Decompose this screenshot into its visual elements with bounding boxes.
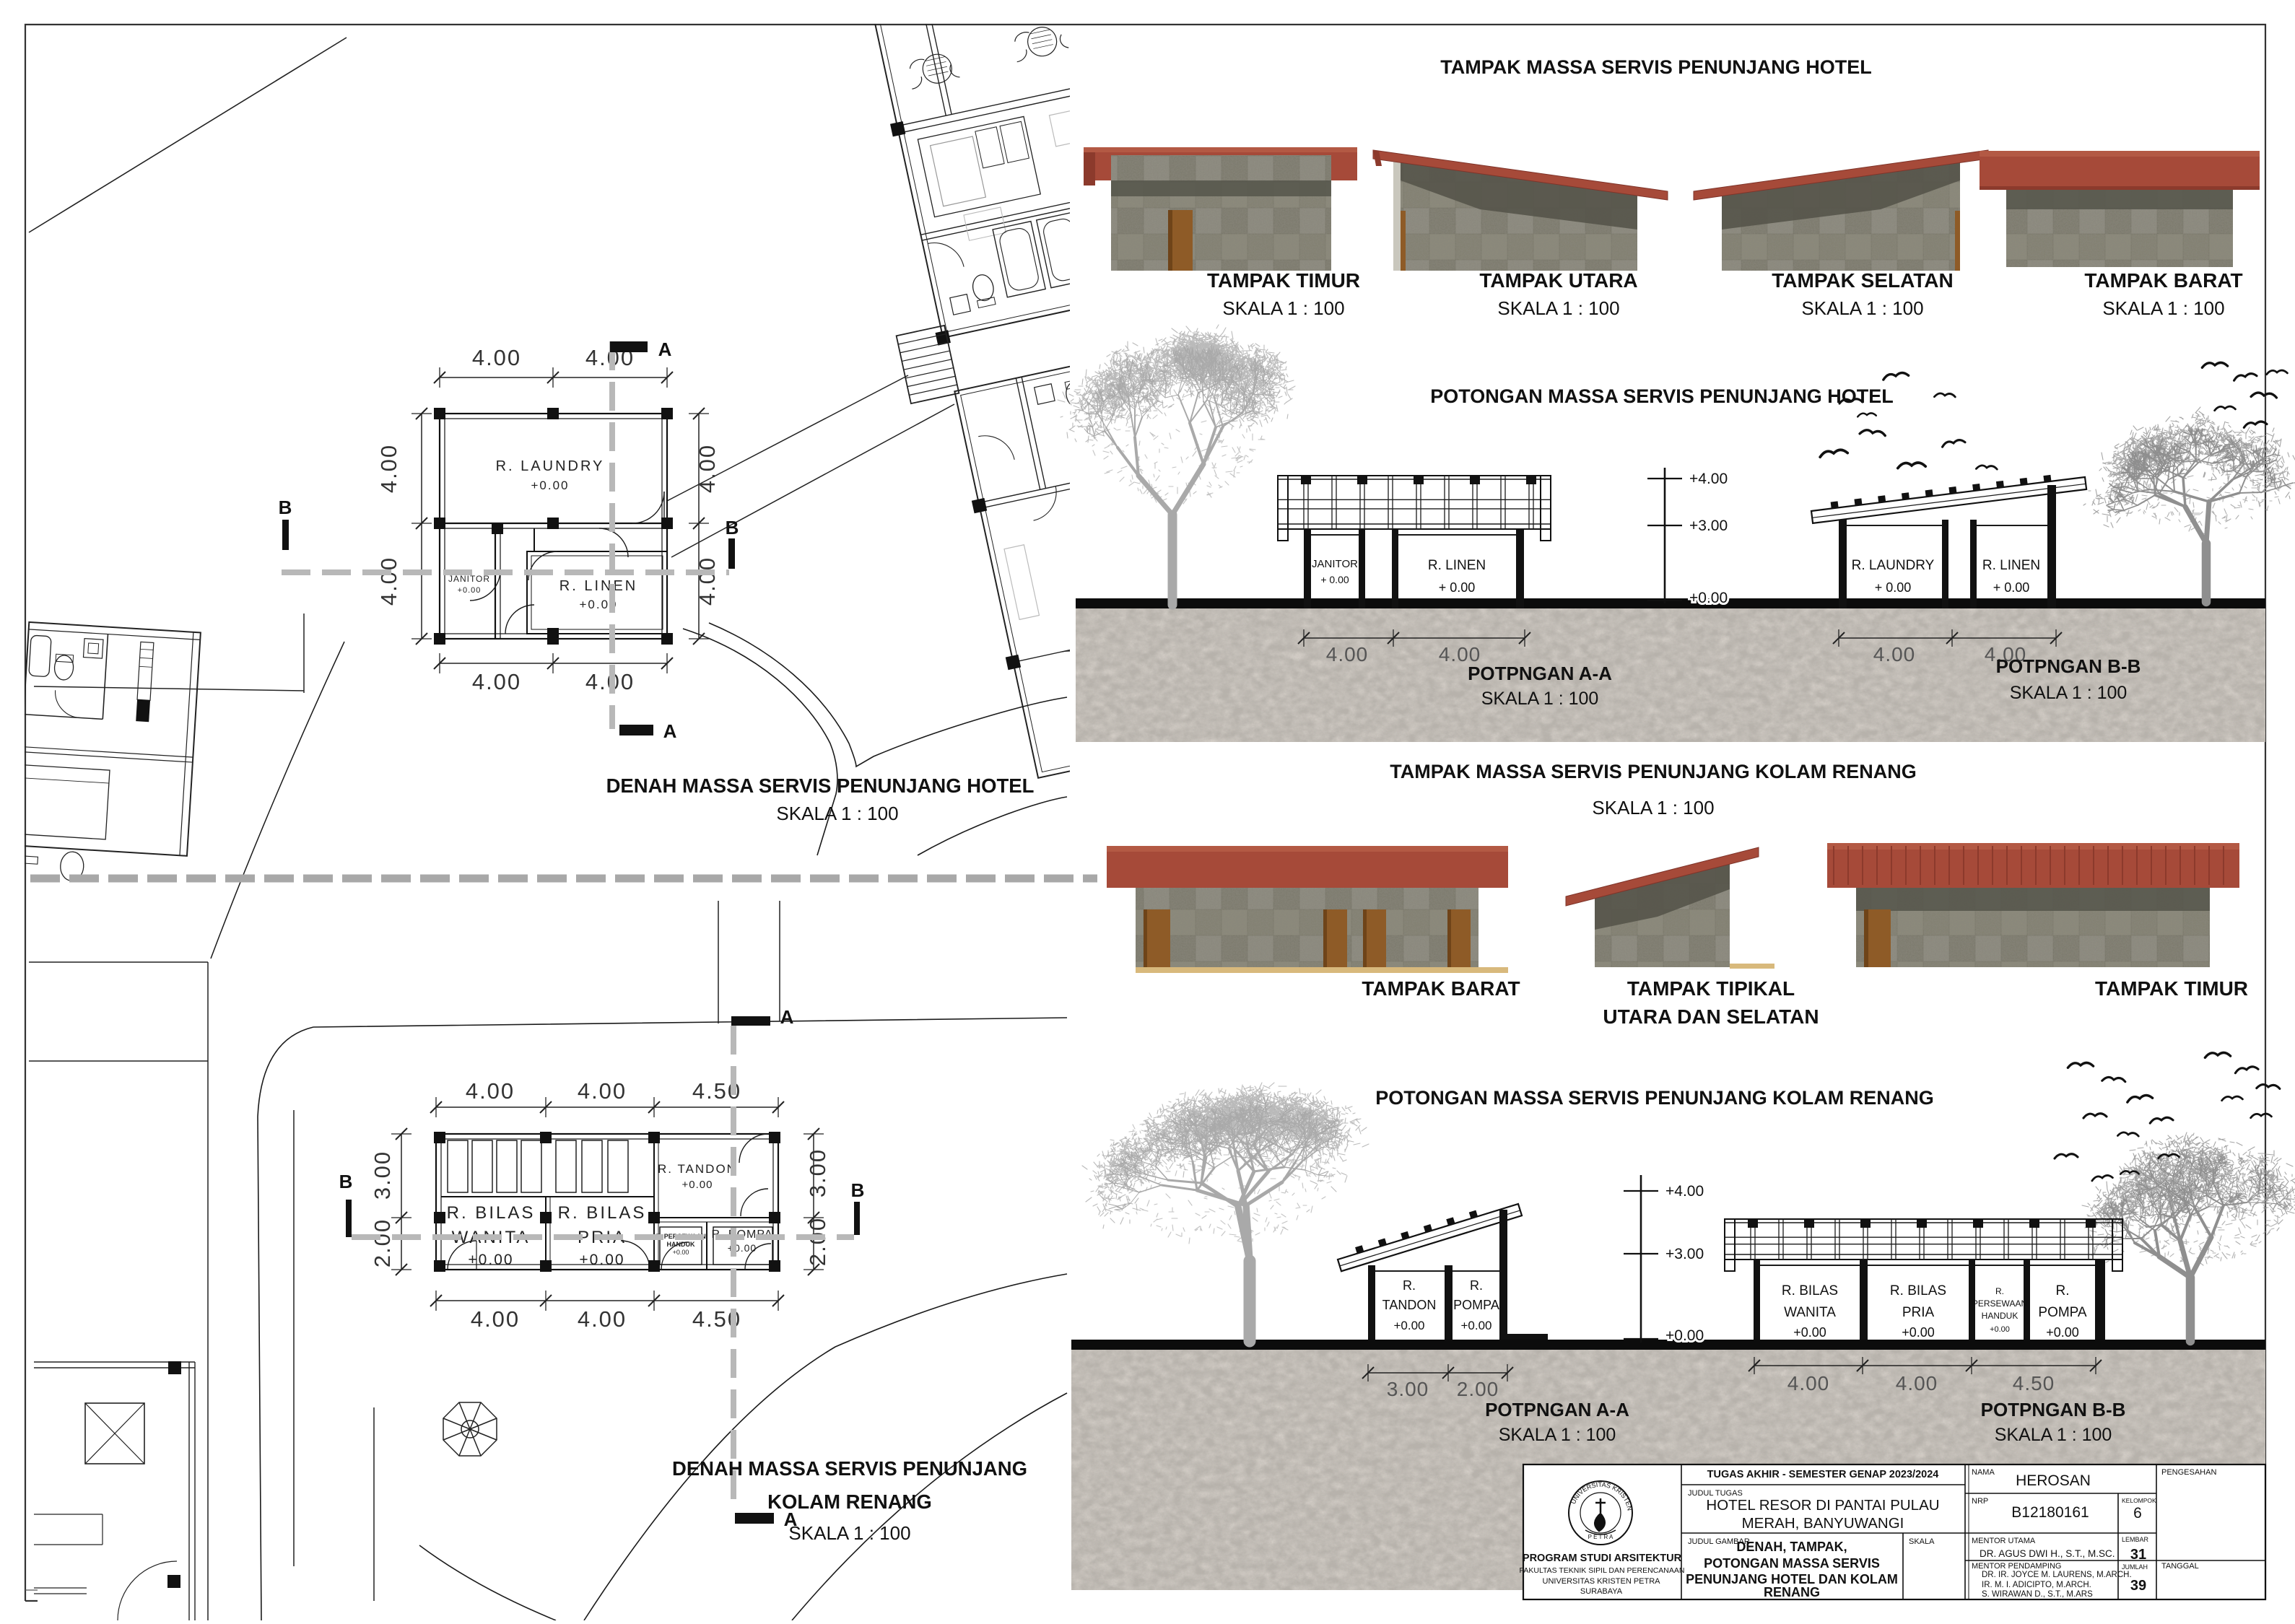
svg-text:R. BILAS: R. BILAS: [1890, 1283, 1946, 1298]
svg-text:DR. AGUS DWI H., S.T., M.SC.: DR. AGUS DWI H., S.T., M.SC.: [1980, 1548, 2115, 1559]
svg-text:DENAH MASSA SERVIS PENUNJANG: DENAH MASSA SERVIS PENUNJANG: [672, 1457, 1027, 1480]
svg-text:POTONGAN MASSA SERVIS PENUNJAN: POTONGAN MASSA SERVIS PENUNJANG KOLAM RE…: [1375, 1087, 1934, 1109]
svg-text:TAMPAK MASSA SERVIS PENUNJANG: TAMPAK MASSA SERVIS PENUNJANG HOTEL: [1440, 56, 1872, 78]
svg-text:+0.00: +0.00: [468, 1252, 513, 1268]
svg-text:4.00: 4.00: [376, 444, 401, 493]
svg-text:TAMPAK UTARA: TAMPAK UTARA: [1479, 269, 1637, 292]
svg-text:B: B: [279, 497, 292, 518]
svg-text:B: B: [726, 517, 739, 538]
svg-text:4.00: 4.00: [472, 669, 521, 694]
svg-text:JANITOR: JANITOR: [1312, 558, 1358, 570]
svg-text:HOTEL RESOR DI PANTAI PULAU: HOTEL RESOR DI PANTAI PULAU: [1706, 1497, 1939, 1514]
svg-text:4.00: 4.00: [466, 1078, 515, 1104]
svg-text:+0.00: +0.00: [1665, 1327, 1704, 1344]
svg-text:SKALA 1 : 100: SKALA 1 : 100: [1497, 297, 1619, 319]
svg-text:SKALA 1 : 100: SKALA 1 : 100: [1499, 1425, 1616, 1445]
svg-text:PENUNJANG HOTEL DAN KOLAM: PENUNJANG HOTEL DAN KOLAM: [1686, 1572, 1898, 1586]
svg-text:TANDON: TANDON: [1382, 1298, 1437, 1312]
svg-text:A: A: [663, 720, 677, 742]
svg-text:JUMLAH: JUMLAH: [2122, 1563, 2148, 1571]
svg-text:R. LAUNDRY: R. LAUNDRY: [1852, 558, 1935, 573]
svg-text:TAMPAK BARAT: TAMPAK BARAT: [1362, 977, 1520, 1000]
svg-text:4.00: 4.00: [376, 556, 401, 606]
svg-text:PRIA: PRIA: [1902, 1305, 1935, 1320]
svg-text:4.00: 4.00: [578, 1078, 627, 1104]
svg-text:POMPA: POMPA: [2038, 1305, 2087, 1320]
svg-text:POMPA: POMPA: [1453, 1298, 1499, 1312]
svg-text:IR. M. I. ADICIPTO, M.ARCH.: IR. M. I. ADICIPTO, M.ARCH.: [1982, 1581, 2091, 1589]
svg-text:R. LAUNDRY: R. LAUNDRY: [496, 458, 605, 474]
svg-text:P E T R A: P E T R A: [1588, 1534, 1614, 1540]
svg-text:PERSEWAAN: PERSEWAAN: [1972, 1298, 2027, 1309]
svg-text:UNIVERSITAS KRISTEN PETRA: UNIVERSITAS KRISTEN PETRA: [1543, 1577, 1661, 1586]
svg-text:3.00: 3.00: [805, 1148, 830, 1197]
svg-text:TANGGAL: TANGGAL: [2161, 1562, 2199, 1571]
svg-text:+3.00: +3.00: [1689, 518, 1728, 534]
svg-text:R. BILAS: R. BILAS: [1782, 1283, 1838, 1298]
svg-text:MERAH, BANYUWANGI: MERAH, BANYUWANGI: [1742, 1515, 1904, 1532]
svg-text:POTONGAN MASSA SERVIS PENUNJAN: POTONGAN MASSA SERVIS PENUNJANG HOTEL: [1430, 385, 1894, 407]
svg-text:+ 0.00: + 0.00: [1993, 580, 2030, 595]
svg-text:NAMA: NAMA: [1972, 1468, 1995, 1477]
svg-text:SKALA 1 : 100: SKALA 1 : 100: [1481, 689, 1599, 709]
svg-text:4.00: 4.00: [1896, 1372, 1938, 1394]
svg-text:SKALA 1 : 100: SKALA 1 : 100: [788, 1522, 910, 1544]
svg-text:SKALA: SKALA: [1909, 1537, 1935, 1546]
svg-text:TAMPAK BARAT: TAMPAK BARAT: [2084, 269, 2242, 292]
svg-text:2.00: 2.00: [370, 1218, 395, 1267]
svg-text:A: A: [658, 339, 672, 360]
svg-text:4.00: 4.00: [1873, 643, 1916, 665]
svg-text:4.00: 4.00: [578, 1306, 627, 1332]
svg-text:S. WIRAWAN D., S.T., M.ARS: S. WIRAWAN D., S.T., M.ARS: [1982, 1590, 2093, 1599]
svg-text:R. BILAS: R. BILAS: [558, 1203, 647, 1223]
svg-text:SKALA 1 : 100: SKALA 1 : 100: [2102, 297, 2224, 319]
svg-text:+0.00: +0.00: [458, 586, 482, 595]
svg-text:+0.00: +0.00: [1990, 1325, 2010, 1334]
svg-text:+3.00: +3.00: [1665, 1246, 1704, 1262]
svg-text:TAMPAK SELATAN: TAMPAK SELATAN: [1772, 269, 1953, 292]
svg-text:+0.00: +0.00: [1689, 590, 1728, 606]
svg-text:+ 0.00: + 0.00: [1875, 580, 1912, 595]
svg-text:+ 0.00: + 0.00: [1320, 574, 1349, 585]
svg-text:+0.00: +0.00: [673, 1249, 689, 1256]
svg-text:2.00: 2.00: [1457, 1378, 1499, 1400]
svg-text:SKALA 1 : 100: SKALA 1 : 100: [776, 803, 898, 824]
svg-text:RENANG: RENANG: [1764, 1585, 1820, 1599]
svg-text:4.00: 4.00: [694, 444, 720, 493]
svg-text:R. LINEN: R. LINEN: [1982, 558, 2040, 573]
svg-text:POTPNGAN A-A: POTPNGAN A-A: [1468, 663, 1612, 684]
svg-text:SURABAYA: SURABAYA: [1580, 1587, 1623, 1596]
svg-text:NRP: NRP: [1972, 1497, 1988, 1506]
svg-text:+0.00: +0.00: [1902, 1325, 1935, 1340]
svg-text:R. LINEN: R. LINEN: [559, 578, 637, 594]
svg-text:3.00: 3.00: [1387, 1378, 1429, 1400]
svg-text:SKALA 1 : 100: SKALA 1 : 100: [2010, 683, 2128, 703]
svg-text:POTONGAN MASSA SERVIS: POTONGAN MASSA SERVIS: [1704, 1556, 1880, 1571]
svg-text:4.00: 4.00: [1787, 1372, 1830, 1394]
svg-text:6: 6: [2133, 1505, 2142, 1522]
svg-text:TAMPAK TIMUR: TAMPAK TIMUR: [2095, 977, 2248, 1000]
svg-text:+4.00: +4.00: [1689, 471, 1728, 487]
svg-text:PENGESAHAN: PENGESAHAN: [2161, 1468, 2216, 1477]
svg-text:PROGRAM STUDI ARSITEKTUR: PROGRAM STUDI ARSITEKTUR: [1523, 1553, 1682, 1564]
svg-text:+0.00: +0.00: [682, 1179, 713, 1191]
svg-text:+0.00: +0.00: [1460, 1319, 1491, 1332]
svg-text:FAKULTAS TEKNIK SIPIL DAN PERE: FAKULTAS TEKNIK SIPIL DAN PERENCANAAN: [1520, 1566, 1685, 1575]
svg-text:R.: R.: [1470, 1278, 1483, 1293]
svg-text:4.00: 4.00: [1326, 643, 1369, 665]
svg-text:+0.00: +0.00: [1393, 1319, 1424, 1332]
svg-text:R.: R.: [2056, 1283, 2070, 1298]
svg-text:B: B: [851, 1179, 865, 1201]
svg-text:+0.00: +0.00: [531, 479, 569, 492]
svg-text:UTARA DAN SELATAN: UTARA DAN SELATAN: [1603, 1005, 1819, 1028]
svg-text:KELOMPOK: KELOMPOK: [2122, 1497, 2156, 1504]
svg-text:A: A: [780, 1006, 794, 1028]
svg-text:HANDUK: HANDUK: [1982, 1311, 2019, 1321]
svg-text:39: 39: [2130, 1578, 2146, 1594]
svg-text:+0.00: +0.00: [579, 1252, 624, 1268]
svg-text:+0.00: +0.00: [1793, 1325, 1826, 1340]
svg-text:2.00: 2.00: [805, 1217, 830, 1266]
svg-text:DR. IR. JOYCE M. LAURENS, M.AR: DR. IR. JOYCE M. LAURENS, M.ARCH.: [1982, 1571, 2132, 1579]
svg-text:SKALA 1 : 100: SKALA 1 : 100: [1222, 297, 1344, 319]
svg-text:POTPNGAN B-B: POTPNGAN B-B: [1981, 1399, 2126, 1420]
svg-text:TUGAS AKHIR - SEMESTER GENAP 2: TUGAS AKHIR - SEMESTER GENAP 2023/2024: [1707, 1469, 1939, 1480]
svg-text:POTPNGAN A-A: POTPNGAN A-A: [1485, 1399, 1629, 1420]
svg-text:R. LINEN: R. LINEN: [1428, 558, 1486, 573]
svg-text:4.00: 4.00: [471, 1306, 520, 1332]
svg-text:WANITA: WANITA: [1784, 1305, 1836, 1320]
svg-text:SKALA 1 : 100: SKALA 1 : 100: [1995, 1425, 2112, 1445]
svg-text:B: B: [339, 1171, 353, 1192]
svg-text:4.00: 4.00: [472, 345, 521, 370]
svg-text:HEROSAN: HEROSAN: [2016, 1472, 2091, 1489]
svg-text:MENTOR PENDAMPING: MENTOR PENDAMPING: [1972, 1562, 2061, 1571]
svg-text:SKALA 1 : 100: SKALA 1 : 100: [1801, 297, 1923, 319]
svg-text:SKALA 1 : 100: SKALA 1 : 100: [1592, 797, 1714, 818]
svg-text:4.50: 4.50: [2013, 1372, 2055, 1394]
svg-text:JANITOR: JANITOR: [448, 574, 490, 584]
svg-text:LEMBAR: LEMBAR: [2122, 1536, 2149, 1543]
svg-text:MENTOR UTAMA: MENTOR UTAMA: [1972, 1537, 2036, 1545]
svg-text:+4.00: +4.00: [1665, 1183, 1704, 1200]
svg-text:TAMPAK TIPIKAL: TAMPAK TIPIKAL: [1627, 977, 1795, 1000]
svg-text:31: 31: [2130, 1547, 2146, 1563]
svg-text:HANDUK: HANDUK: [667, 1241, 695, 1248]
svg-text:DENAH, TAMPAK,: DENAH, TAMPAK,: [1736, 1540, 1847, 1554]
svg-text:TAMPAK MASSA SERVIS PENUNJANG: TAMPAK MASSA SERVIS PENUNJANG KOLAM RENA…: [1390, 761, 1917, 782]
svg-text:+ 0.00: + 0.00: [1439, 580, 1476, 595]
svg-text:POTPNGAN B-B: POTPNGAN B-B: [1996, 655, 2141, 677]
svg-text:B12180161: B12180161: [2011, 1504, 2089, 1521]
svg-text:R.: R.: [1995, 1286, 2004, 1296]
svg-text:R. BILAS: R. BILAS: [447, 1203, 536, 1223]
svg-text:+0.00: +0.00: [2046, 1325, 2079, 1340]
svg-text:3.00: 3.00: [370, 1151, 395, 1200]
svg-text:TAMPAK TIMUR: TAMPAK TIMUR: [1207, 269, 1360, 292]
svg-text:DENAH MASSA SERVIS PENUNJANG H: DENAH MASSA SERVIS PENUNJANG HOTEL: [606, 774, 1035, 797]
svg-text:R.: R.: [1403, 1278, 1416, 1293]
svg-text:R. TANDON: R. TANDON: [658, 1162, 737, 1176]
svg-text:KOLAM RENANG: KOLAM RENANG: [767, 1490, 932, 1513]
svg-text:4.00: 4.00: [694, 556, 720, 606]
